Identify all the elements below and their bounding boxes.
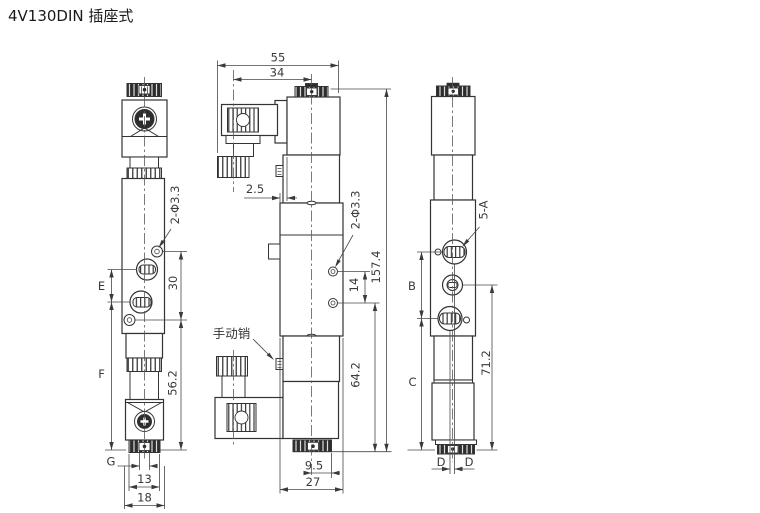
port-callout-5a: 5-A xyxy=(477,200,491,219)
front-hole-callout: 2-Φ3.3 xyxy=(168,186,182,225)
rear-lower-adapter xyxy=(434,336,473,380)
technical-drawing-page: 4V130DIN 插座式 xyxy=(0,0,760,513)
side-connector-screw xyxy=(237,114,250,127)
rear-outline xyxy=(431,83,477,454)
side-mounting-tab xyxy=(269,244,281,259)
rear-dim-label-d-left: D xyxy=(437,455,446,469)
rear-dim-label-71-2: 71.2 xyxy=(479,350,493,376)
side-cable-gland-neck xyxy=(234,144,254,157)
side-outline xyxy=(215,84,343,452)
side-dim-label-34: 34 xyxy=(270,66,285,80)
front-dim-label-56-2: 56.2 xyxy=(166,370,180,396)
side-lower-gland-nut xyxy=(217,357,248,377)
side-dim-label-2-5: 2.5 xyxy=(246,182,264,196)
side-lower-solenoid xyxy=(283,382,339,439)
side-connector-flange xyxy=(226,136,260,144)
rear-upper-adapter xyxy=(434,155,473,200)
side-view: 55 34 2.5 2-Φ3.3 14 64.2 157.4 手 xyxy=(213,51,392,494)
rear-dim-label-d-right: D xyxy=(465,455,474,469)
side-solenoid-body xyxy=(287,97,340,155)
front-mount-hole-top xyxy=(152,246,163,257)
rear-view: 5-A B C 71.2 D D xyxy=(408,77,498,474)
rear-dim-label-b: B xyxy=(408,279,416,293)
side-dim-label-157-4: 157.4 xyxy=(369,251,383,284)
front-dim-label-30: 30 xyxy=(166,276,180,291)
side-dim-label-55: 55 xyxy=(271,51,286,65)
rear-dim-label-c: C xyxy=(408,375,416,389)
rear-lower-solenoid xyxy=(432,383,474,440)
valve-dimension-drawing: 4V130DIN 插座式 xyxy=(0,0,760,513)
side-dim-label-27: 27 xyxy=(306,475,321,489)
manual-pin-label: 手动销 xyxy=(213,326,251,341)
side-lower-connector-screw xyxy=(235,411,248,424)
rear-hole-right xyxy=(464,317,470,323)
rear-solenoid-body xyxy=(432,97,476,156)
front-dim-label-g: G xyxy=(107,455,116,469)
page-title: 4V130DIN 插座式 xyxy=(8,7,133,25)
side-dim-label-14: 14 xyxy=(347,278,361,293)
side-dim-label-64-2: 64.2 xyxy=(349,362,363,388)
front-dim-label-e: E xyxy=(98,279,105,293)
rear-bottom-flange xyxy=(436,440,477,445)
front-dim-label-13: 13 xyxy=(137,472,152,486)
front-dim-label-f: F xyxy=(98,367,105,381)
side-hole-top xyxy=(329,267,338,276)
front-view: 2-Φ3.3 E F 30 56.2 G 13 xyxy=(98,77,187,509)
front-mount-hole-bottom xyxy=(124,315,135,326)
side-dim-label-9-5: 9.5 xyxy=(305,459,323,473)
side-hole-bottom xyxy=(329,299,338,308)
front-dim-label-18: 18 xyxy=(137,491,152,505)
side-hole-callout: 2-Φ3.3 xyxy=(349,191,363,230)
